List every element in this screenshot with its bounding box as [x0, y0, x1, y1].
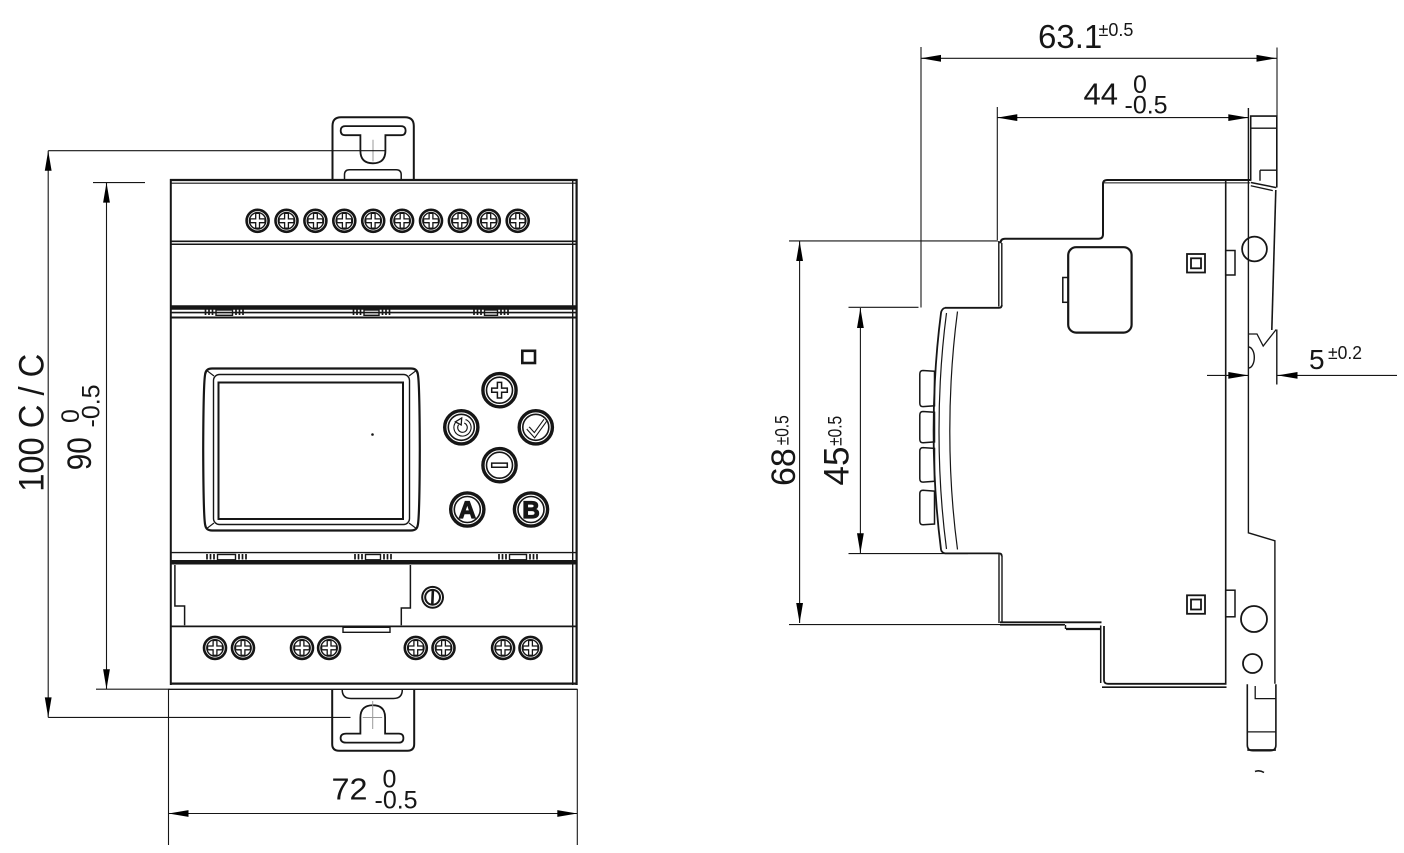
svg-text:68: 68: [765, 448, 803, 486]
svg-text:100 C / C: 100 C / C: [12, 354, 51, 492]
svg-text:±0.2: ±0.2: [1328, 343, 1362, 363]
svg-text:±0.5: ±0.5: [773, 415, 794, 445]
svg-text:-0.5: -0.5: [375, 787, 418, 815]
svg-text:5: 5: [1309, 344, 1325, 375]
svg-text:±0.5: ±0.5: [826, 416, 847, 446]
svg-text:72: 72: [332, 772, 368, 807]
svg-text:90: 90: [61, 437, 99, 470]
svg-text:-0.5: -0.5: [1125, 92, 1168, 120]
svg-text:B: B: [522, 497, 539, 524]
svg-text:63.1: 63.1: [1038, 18, 1102, 55]
svg-text:A: A: [459, 497, 476, 524]
svg-text:±0.5: ±0.5: [1099, 20, 1134, 40]
svg-text:-0.5: -0.5: [78, 384, 106, 427]
svg-text:44: 44: [1084, 77, 1118, 112]
svg-text:45: 45: [818, 447, 857, 486]
